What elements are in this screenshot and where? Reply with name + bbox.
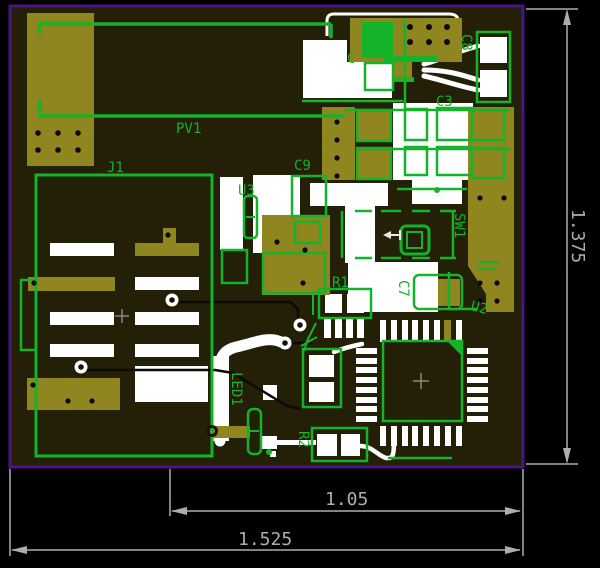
qfn-pad bbox=[445, 426, 451, 446]
copper-pad bbox=[357, 148, 391, 179]
label-c9[interactable]: C9 bbox=[294, 158, 311, 174]
j1-pad bbox=[135, 312, 199, 325]
board-drawing: PV1 J1 U3 C9 C C3 R1 C8 SW1 C7 U2 LED1 R… bbox=[0, 0, 600, 568]
qfn-pad bbox=[356, 377, 377, 383]
label-c8[interactable]: C8 bbox=[458, 34, 474, 51]
qfn-pad bbox=[456, 320, 462, 342]
silk-block bbox=[303, 40, 347, 98]
j1-pad bbox=[50, 312, 114, 325]
qfn-pad bbox=[356, 358, 377, 364]
qfn-pad bbox=[467, 416, 488, 422]
qfn-pad bbox=[412, 320, 418, 342]
qfn-copper-pad bbox=[444, 320, 451, 342]
label-pv1[interactable]: PV1 bbox=[176, 121, 201, 137]
j1-pad bbox=[135, 344, 199, 357]
qfn-pad bbox=[467, 406, 488, 412]
qfn-pad bbox=[391, 320, 397, 342]
qfn-pad bbox=[467, 387, 488, 393]
r1-pad bbox=[325, 294, 342, 313]
pad bbox=[357, 318, 364, 338]
label-c1[interactable]: C bbox=[347, 51, 355, 67]
qfn-pad bbox=[456, 426, 462, 446]
qfn-pad bbox=[402, 320, 408, 342]
r1-pad bbox=[347, 294, 364, 313]
qfn-pad bbox=[356, 387, 377, 393]
j1-copper-pad bbox=[28, 277, 115, 291]
dim-height-value[interactable]: 1.375 bbox=[567, 209, 588, 263]
qfn-pad bbox=[380, 320, 386, 342]
qfn-pad bbox=[423, 426, 429, 446]
copper-pad bbox=[357, 110, 391, 141]
j1-copper-pad bbox=[135, 243, 199, 256]
copper-pad bbox=[472, 110, 504, 140]
qfn-pad bbox=[356, 367, 377, 373]
qfn-pad bbox=[356, 348, 377, 354]
qfn-pad bbox=[356, 397, 377, 403]
green-dot bbox=[434, 187, 440, 193]
qfn-pad bbox=[412, 426, 418, 446]
pcb-editor-canvas: PV1 J1 U3 C9 C C3 R1 C8 SW1 C7 U2 LED1 R… bbox=[0, 0, 600, 568]
green-pad bbox=[383, 56, 437, 62]
qfn-pad bbox=[467, 397, 488, 403]
pad bbox=[309, 355, 334, 377]
qfn-pad bbox=[467, 348, 488, 354]
r2-pad bbox=[341, 434, 360, 456]
pad bbox=[346, 318, 353, 338]
dim-width-value[interactable]: 1.525 bbox=[238, 529, 292, 550]
label-u3[interactable]: U3 bbox=[238, 183, 255, 199]
silk-block bbox=[310, 183, 388, 206]
label-j1[interactable]: J1 bbox=[107, 160, 124, 176]
pad bbox=[335, 318, 342, 338]
silk-block bbox=[345, 62, 392, 98]
silk-block bbox=[135, 366, 208, 402]
r2-pad bbox=[317, 434, 337, 456]
pad bbox=[324, 318, 331, 338]
copper-pad bbox=[322, 107, 355, 180]
qfn-pad bbox=[467, 358, 488, 364]
led-pad bbox=[262, 436, 277, 449]
c8-pad bbox=[480, 37, 507, 63]
qfn-pad bbox=[434, 426, 440, 446]
qfn-pad bbox=[356, 406, 377, 412]
copper-pad bbox=[27, 378, 120, 410]
qfn-pad bbox=[356, 416, 377, 422]
c8-pad bbox=[480, 70, 507, 97]
pad bbox=[309, 382, 334, 402]
qfn-pad bbox=[467, 367, 488, 373]
qfn-pad bbox=[434, 320, 440, 342]
copper-pad bbox=[472, 148, 504, 178]
label-r2[interactable]: R2 bbox=[295, 431, 311, 448]
qfn-pad bbox=[380, 426, 386, 446]
label-c7[interactable]: C7 bbox=[395, 280, 411, 297]
green-pad bbox=[393, 77, 414, 82]
green-pad bbox=[362, 22, 393, 58]
copper-pad-topleft[interactable] bbox=[27, 13, 94, 166]
label-r1[interactable]: R1 bbox=[332, 275, 349, 291]
qfn-pad bbox=[402, 426, 408, 446]
label-led1[interactable]: LED1 bbox=[228, 372, 244, 406]
j1-pad bbox=[50, 344, 114, 357]
qfn-pad bbox=[423, 320, 429, 342]
j1-pad bbox=[50, 243, 114, 256]
dim-inner-value[interactable]: 1.05 bbox=[325, 489, 368, 510]
label-sw1[interactable]: SW1 bbox=[451, 213, 467, 238]
label-c3[interactable]: C3 bbox=[436, 94, 453, 110]
j1-pad bbox=[135, 277, 199, 290]
qfn-pad bbox=[467, 377, 488, 383]
green-dot bbox=[266, 449, 272, 455]
